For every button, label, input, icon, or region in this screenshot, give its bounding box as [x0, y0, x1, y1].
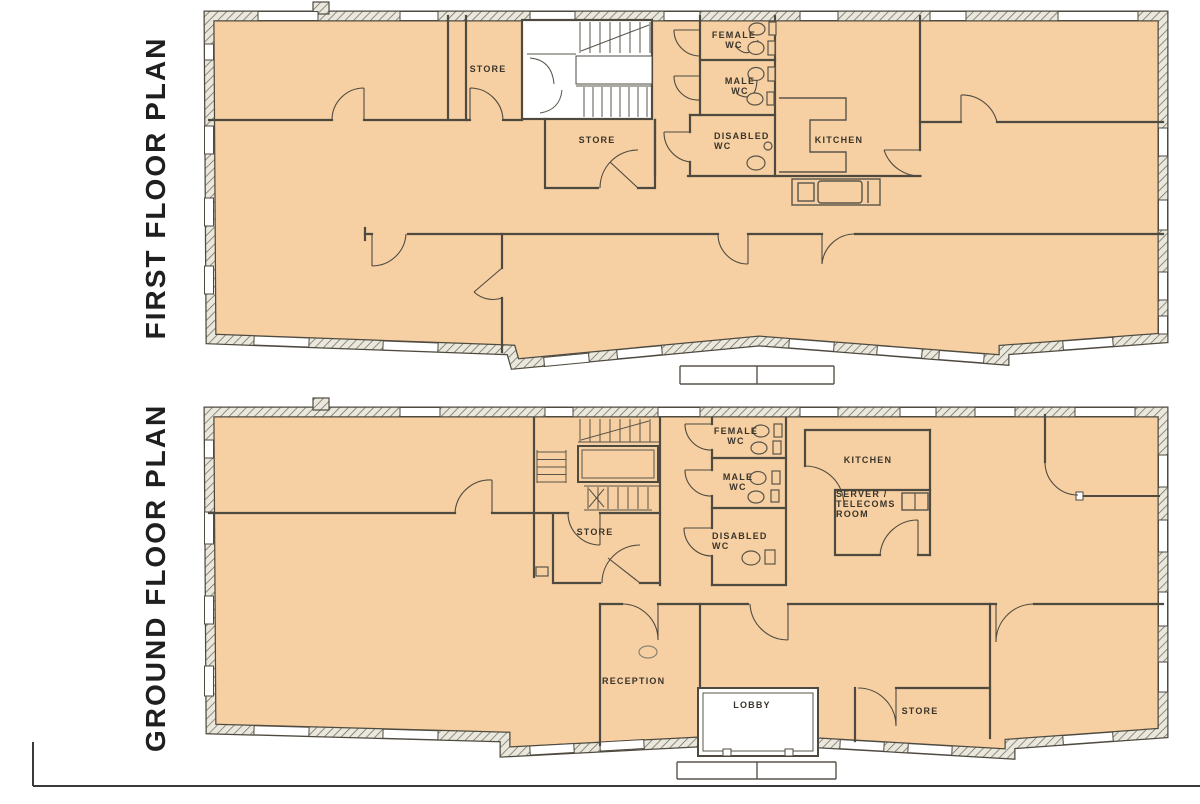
room-label-store-mid-ground: STORE [566, 527, 624, 537]
first-floor-slab [209, 16, 1163, 364]
room-label-male-wc-first: MALE WC [718, 76, 762, 96]
room-label-disabled-wc-ground: DISABLED WC [712, 531, 776, 551]
ground-floor-slab [209, 412, 1163, 754]
room-label-kitchen-first: KITCHEN [808, 135, 870, 145]
room-label-kitchen-ground: KITCHEN [834, 455, 902, 465]
room-label-lobby: LOBBY [720, 700, 784, 710]
room-label-disabled-wc-first: DISABLED WC [714, 131, 778, 151]
room-label-store-mid-first: STORE [568, 135, 626, 145]
first-floor-stairwell [522, 20, 652, 119]
room-label-female-wc-first: FEMALE WC [710, 30, 758, 50]
floor-plan-drawing [0, 0, 1200, 804]
room-label-female-wc-ground: FEMALE WC [712, 426, 760, 446]
room-label-male-wc-ground: MALE WC [716, 472, 760, 492]
room-label-store-left: STORE [460, 64, 516, 74]
first-floor-plan-title: FIRST FLOOR PLAN [138, 28, 174, 348]
room-label-server-telecoms: SERVER / TELECOMS ROOM [836, 489, 902, 519]
ground-floor-canopy [677, 762, 836, 779]
first-floor-plan [205, 2, 1168, 384]
ground-floor-plan [205, 398, 1168, 779]
ground-floor-plan-title: GROUND FLOOR PLAN [138, 408, 174, 752]
ground-floor-wall-bump [313, 398, 329, 410]
room-label-store-right: STORE [890, 706, 950, 716]
room-label-reception: RECEPTION [602, 676, 682, 686]
first-floor-canopy [680, 366, 834, 384]
ground-floor-lobby [698, 688, 818, 756]
floor-plan-sheet: FIRST FLOOR PLAN GROUND FLOOR PLAN STORE… [0, 0, 1200, 804]
